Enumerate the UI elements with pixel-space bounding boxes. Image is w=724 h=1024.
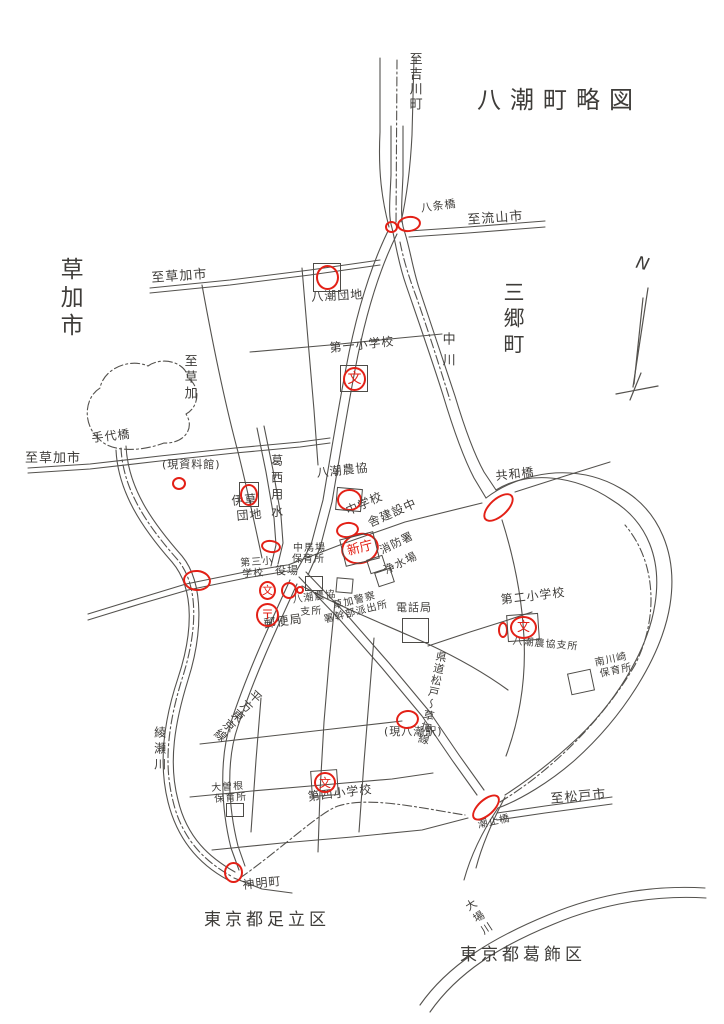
building-square bbox=[335, 487, 363, 512]
teshiro-bridge-label: 手代橋 bbox=[91, 428, 131, 445]
to-yoshikawa-cho-label: 至吉川町 bbox=[407, 52, 421, 112]
misato-town-label: 三郷町 bbox=[502, 281, 524, 359]
dai3-elementary-label-2: 学校 bbox=[242, 568, 265, 580]
building-square bbox=[506, 613, 540, 642]
former-museum-label: (現資料館) bbox=[162, 459, 221, 471]
igusa-danchi-label-2: 団地 bbox=[236, 508, 263, 523]
marker-former-museum bbox=[172, 477, 186, 490]
town-office-label: 役場 bbox=[275, 565, 299, 577]
building-square bbox=[310, 769, 339, 797]
hachijo-bridge-label: 八条橋 bbox=[420, 198, 457, 214]
dai2-elementary-label: 第二小学校 bbox=[500, 586, 566, 606]
to-soka-label: 至草加 bbox=[182, 354, 196, 402]
building-square bbox=[239, 482, 259, 507]
north-label: N bbox=[634, 253, 651, 275]
telephone-office-label: 電話局 bbox=[396, 602, 432, 614]
kasai-canal-label: 葛西用水 bbox=[270, 454, 283, 522]
obagawa-river-label: 大場川 bbox=[462, 897, 495, 939]
marker-kasai-crossing bbox=[260, 539, 282, 555]
map-page: 八潮町略図 N 至吉川町八条橋至流山市草加市三郷町至草加市八潮団地中川第一小学校… bbox=[0, 0, 724, 1024]
marker-post-office: 〒 bbox=[256, 603, 279, 627]
nokyo-branch-label-2: 支所 bbox=[300, 606, 323, 618]
building-square bbox=[402, 618, 429, 643]
marker-kyowa-bridge bbox=[478, 488, 518, 527]
building-square bbox=[567, 669, 595, 696]
tokyo-adachi-ward-label: 東京都足立区 bbox=[204, 912, 330, 930]
hirakata-tokyo-line-label: 平方東京線 bbox=[211, 687, 264, 744]
marker-shinmei-cho bbox=[224, 862, 243, 883]
to-soka-city-top-label: 至草加市 bbox=[151, 268, 208, 286]
marker-town-office bbox=[281, 582, 297, 599]
nakagawa-river-label: 中川 bbox=[440, 332, 454, 374]
shinmei-cho-label: 神明町 bbox=[242, 875, 282, 892]
kyowa-bridge-label: 共和橋 bbox=[495, 466, 535, 483]
nakababa-nursery-label-1: 中馬場 bbox=[293, 544, 326, 555]
marker-dai3-school: 文 bbox=[259, 581, 276, 600]
yashio-nokyo-label: 八潮農協 bbox=[316, 462, 369, 480]
to-matsudo-city-label: 至松戸市 bbox=[550, 788, 607, 806]
tokyo-katsushika-ward-label: 東京都葛飾区 bbox=[460, 947, 586, 965]
building-square bbox=[335, 577, 353, 593]
to-soka-city-left-label: 至草加市 bbox=[25, 452, 81, 466]
marker-yanaginomiya-bridge bbox=[182, 569, 212, 592]
ayase-river-label: 綾瀬川 bbox=[153, 726, 166, 774]
marker-town-office-dot bbox=[296, 586, 304, 594]
building-square bbox=[313, 263, 341, 292]
map-overlay: 八潮町略図 N 至吉川町八条橋至流山市草加市三郷町至草加市八潮団地中川第一小学校… bbox=[0, 0, 724, 1024]
building-square bbox=[340, 365, 368, 392]
soka-city-label: 草加市 bbox=[57, 257, 81, 341]
building-square bbox=[226, 803, 244, 817]
marker-hachijo-bridge-b bbox=[396, 214, 422, 233]
building-square bbox=[305, 576, 323, 591]
to-nagareyama-city-label: 至流山市 bbox=[467, 210, 524, 228]
dai1-elementary-label: 第一小学校 bbox=[329, 335, 395, 354]
yashio-station-label: (現八潮駅) bbox=[384, 726, 443, 738]
map-title: 八潮町略図 bbox=[477, 80, 642, 115]
